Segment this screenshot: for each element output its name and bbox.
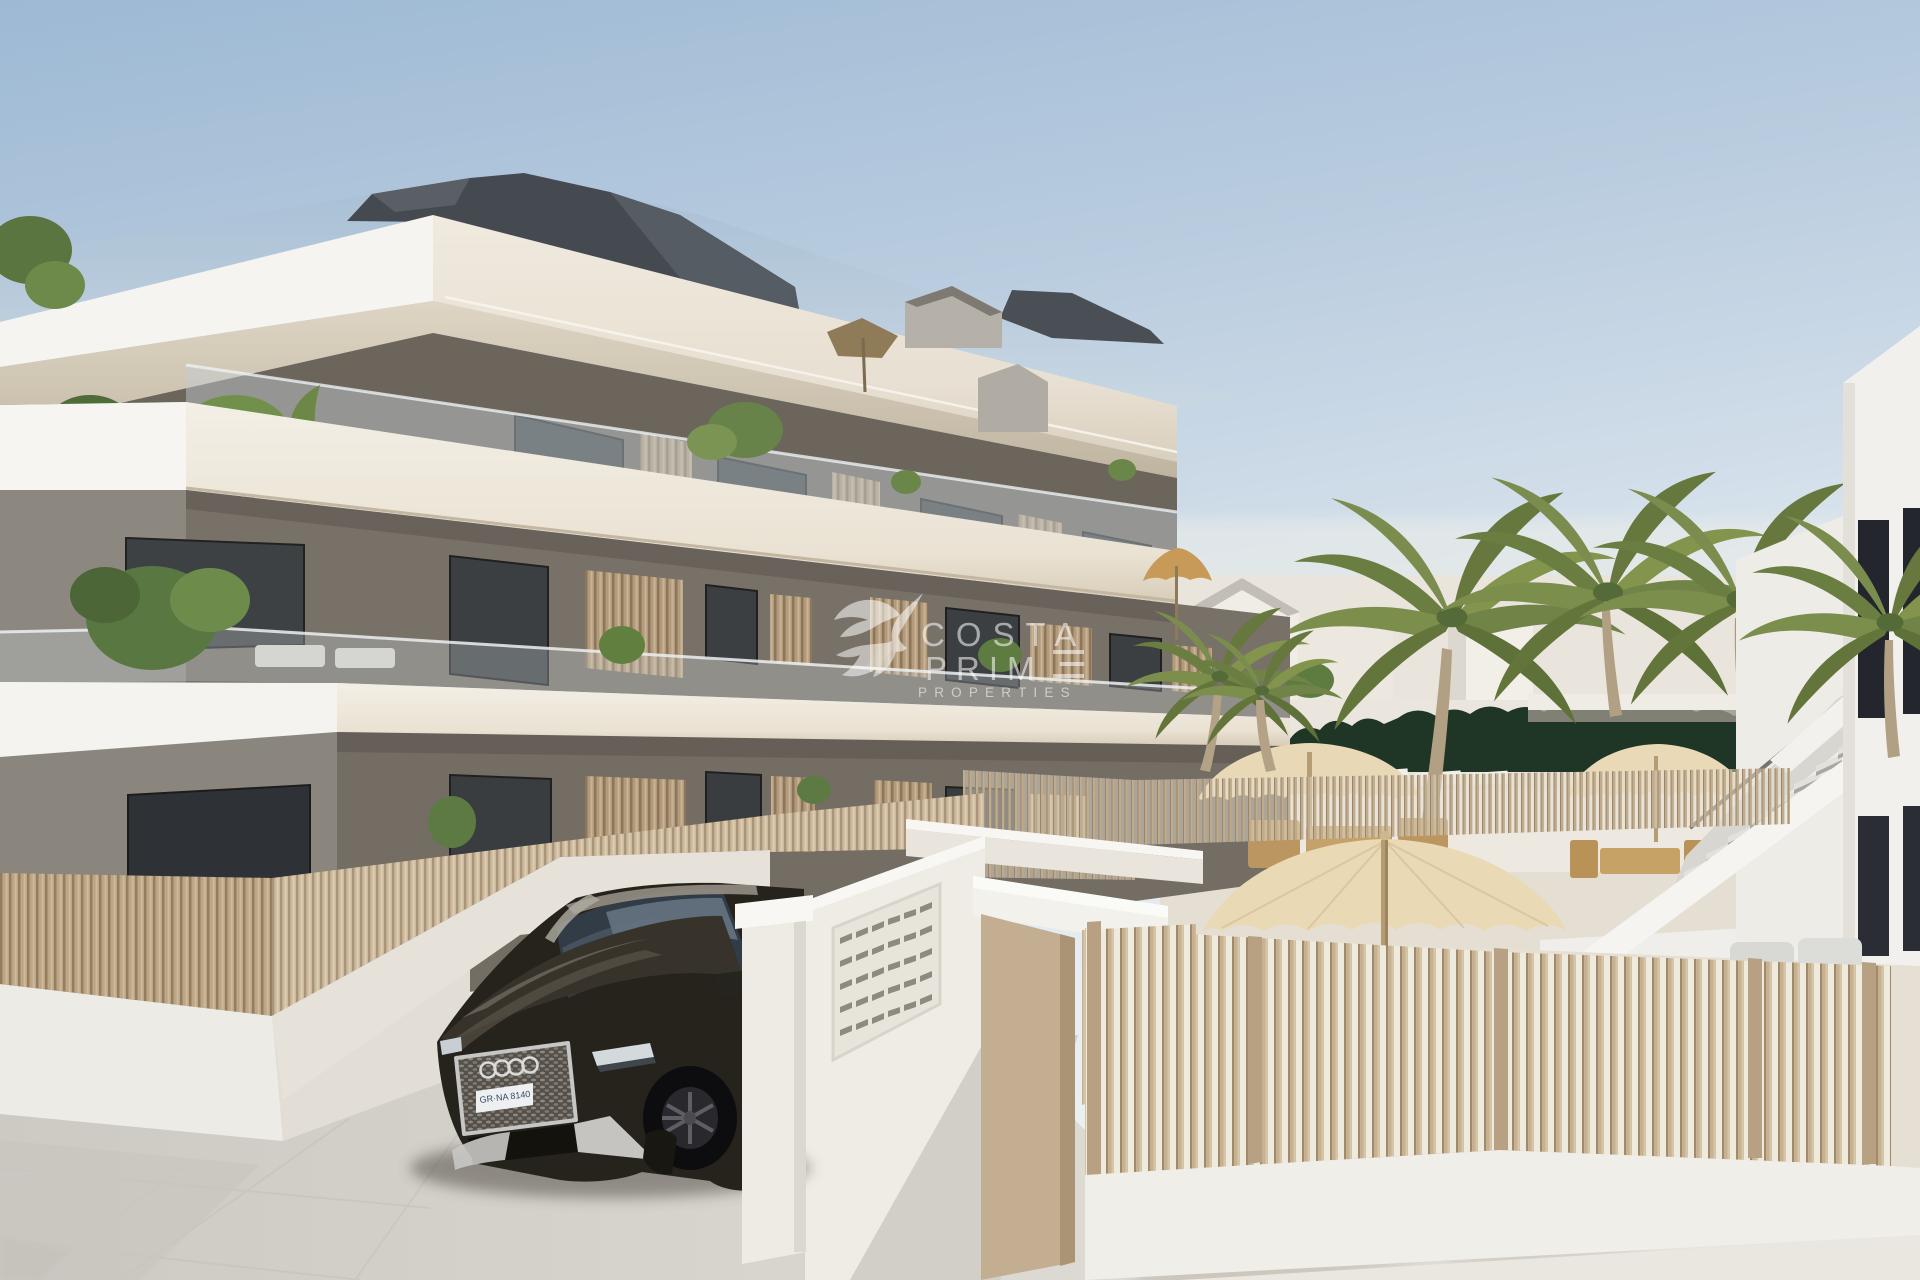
svg-text:COSTA: COSTA xyxy=(921,616,1087,653)
svg-text:PRIM: PRIM xyxy=(925,650,1044,687)
svg-text:PROPERTIES: PROPERTIES xyxy=(918,685,1077,700)
